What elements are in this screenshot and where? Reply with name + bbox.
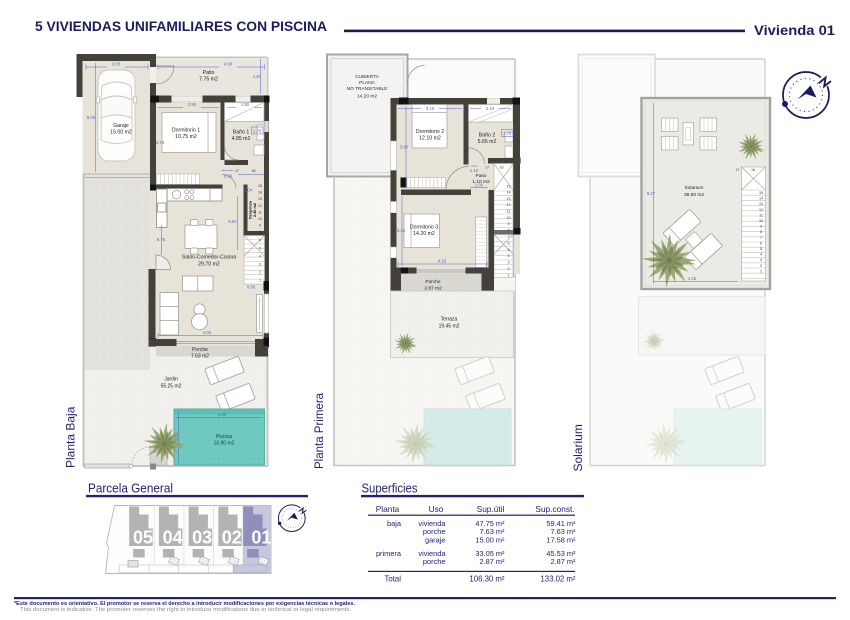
svg-text:9: 9 <box>259 224 261 228</box>
svg-text:14: 14 <box>506 191 510 195</box>
svg-text:0.90: 0.90 <box>247 285 256 290</box>
svg-text:9: 9 <box>760 225 762 229</box>
svg-text:3.00: 3.00 <box>112 62 121 67</box>
svg-text:3.04: 3.04 <box>244 188 253 193</box>
svg-text:10: 10 <box>759 219 763 223</box>
svg-text:baja: baja <box>387 519 402 528</box>
svg-text:4.90: 4.90 <box>224 62 233 67</box>
svg-text:6: 6 <box>760 241 762 245</box>
svg-text:15: 15 <box>258 184 262 188</box>
svg-text:38.90 m2: 38.90 m2 <box>684 192 704 198</box>
svg-text:17.58 m²: 17.58 m² <box>546 535 576 544</box>
svg-text:16: 16 <box>751 168 755 172</box>
svg-text:Porche: Porche <box>425 279 441 285</box>
svg-text:2.70: 2.70 <box>253 128 262 133</box>
svg-text:15: 15 <box>759 191 763 195</box>
svg-text:1.87: 1.87 <box>253 74 262 79</box>
svg-text:10: 10 <box>258 217 262 221</box>
svg-text:8: 8 <box>259 230 261 234</box>
svg-text:15.00 m²: 15.00 m² <box>475 535 505 544</box>
svg-text:17: 17 <box>485 166 489 170</box>
svg-text:Planta: Planta <box>376 504 400 514</box>
svg-text:This document is indicative. T: This document is indicative. The promote… <box>20 607 351 613</box>
svg-text:Solarium: Solarium <box>571 424 585 471</box>
svg-text:10.75 m2: 10.75 m2 <box>175 134 197 140</box>
svg-text:12: 12 <box>506 203 510 207</box>
svg-text:4: 4 <box>507 254 509 258</box>
svg-text:1.00: 1.00 <box>475 183 484 188</box>
svg-text:11: 11 <box>258 210 262 214</box>
svg-text:Salón-Comedor-Cocina: Salón-Comedor-Cocina <box>182 255 236 261</box>
svg-text:4.00: 4.00 <box>203 330 212 335</box>
svg-text:2.10: 2.10 <box>486 106 495 111</box>
svg-text:Solarium: Solarium <box>685 185 704 191</box>
svg-text:14: 14 <box>258 191 262 195</box>
svg-text:4.15: 4.15 <box>438 259 447 264</box>
svg-text:12: 12 <box>258 204 262 208</box>
svg-text:7.63 m2: 7.63 m2 <box>191 354 209 360</box>
svg-text:7: 7 <box>760 236 762 240</box>
svg-text:2: 2 <box>507 267 509 271</box>
svg-text:10: 10 <box>506 216 510 220</box>
svg-text:Superficies: Superficies <box>362 481 418 496</box>
svg-text:3.10: 3.10 <box>426 106 435 111</box>
svg-text:Porche: Porche <box>192 347 208 353</box>
svg-text:5: 5 <box>760 247 762 251</box>
svg-text:10.90 m2: 10.90 m2 <box>214 441 235 447</box>
svg-text:2.87 m²: 2.87 m² <box>550 557 576 566</box>
svg-text:garaje: garaje <box>425 535 446 544</box>
svg-text:5.00: 5.00 <box>87 115 96 120</box>
svg-text:1: 1 <box>507 273 509 277</box>
svg-text:6: 6 <box>259 239 261 243</box>
svg-text:17: 17 <box>235 169 239 173</box>
svg-text:0.90: 0.90 <box>224 174 233 179</box>
svg-text:12: 12 <box>759 208 763 212</box>
svg-text:7: 7 <box>507 235 509 239</box>
svg-text:133.02 m²: 133.02 m² <box>540 575 576 584</box>
svg-text:Dormitorio 1: Dormitorio 1 <box>172 128 200 134</box>
svg-text:NO TRANSITABLE: NO TRANSITABLE <box>347 86 388 92</box>
svg-text:16: 16 <box>499 166 503 170</box>
svg-text:primera: primera <box>376 549 402 558</box>
svg-text:05: 05 <box>133 528 153 548</box>
svg-text:Planta Baja: Planta Baja <box>64 406 78 468</box>
svg-text:1.80: 1.80 <box>241 102 250 107</box>
svg-text:3: 3 <box>259 263 261 267</box>
svg-text:3: 3 <box>507 261 509 265</box>
svg-text:Dormitorio 3: Dormitorio 3 <box>410 225 438 231</box>
svg-text:4: 4 <box>760 253 762 257</box>
svg-text:4: 4 <box>259 255 261 259</box>
svg-text:Vivienda 01: Vivienda 01 <box>754 22 835 38</box>
svg-text:5: 5 <box>507 248 509 252</box>
svg-text:4.25: 4.25 <box>688 276 697 281</box>
svg-text:6.75: 6.75 <box>157 237 166 242</box>
svg-text:2.87 m²: 2.87 m² <box>479 557 505 566</box>
svg-text:Parcela General: Parcela General <box>88 481 173 496</box>
svg-text:CUBIERTA: CUBIERTA <box>355 74 380 80</box>
svg-text:Garaje: Garaje <box>113 123 129 129</box>
svg-text:1: 1 <box>760 269 762 273</box>
svg-text:3.73: 3.73 <box>156 140 165 145</box>
svg-text:3.42: 3.42 <box>397 228 406 233</box>
svg-text:PLANA: PLANA <box>359 80 376 86</box>
svg-text:02: 02 <box>222 528 242 548</box>
svg-text:5 VIVIENDAS UNIFAMILIARES CON: 5 VIVIENDAS UNIFAMILIARES CON PISCINA <box>35 19 327 34</box>
svg-text:13: 13 <box>506 197 510 201</box>
svg-text:2.45 m2: 2.45 m2 <box>253 203 257 217</box>
svg-text:16: 16 <box>252 169 256 173</box>
svg-text:5.65 m2: 5.65 m2 <box>478 139 497 145</box>
svg-text:8.27: 8.27 <box>647 191 656 196</box>
svg-text:5.02: 5.02 <box>228 219 237 224</box>
svg-text:5: 5 <box>259 247 261 251</box>
svg-text:Jardin: Jardin <box>164 377 178 383</box>
svg-text:8: 8 <box>760 230 762 234</box>
svg-text:13: 13 <box>759 202 763 206</box>
svg-text:Patio: Patio <box>203 70 215 76</box>
svg-text:Despensa: Despensa <box>249 200 253 219</box>
svg-text:03: 03 <box>192 528 212 548</box>
svg-text:4.00: 4.00 <box>218 412 227 417</box>
svg-text:29.70 m2: 29.70 m2 <box>198 262 220 268</box>
svg-text:Baño 1: Baño 1 <box>233 130 250 136</box>
svg-text:04: 04 <box>163 528 183 548</box>
svg-text:12.10 m2: 12.10 m2 <box>419 136 441 142</box>
svg-text:1: 1 <box>259 279 261 283</box>
svg-text:13: 13 <box>258 197 262 201</box>
svg-text:7.75 m2: 7.75 m2 <box>199 77 218 83</box>
svg-text:Paso: Paso <box>476 173 487 179</box>
svg-text:Sup.útil: Sup.útil <box>477 504 505 514</box>
svg-text:Dormitorio 2: Dormitorio 2 <box>416 129 444 135</box>
svg-text:17: 17 <box>735 168 739 172</box>
svg-text:2.90: 2.90 <box>188 102 197 107</box>
svg-text:porche: porche <box>423 557 446 566</box>
svg-text:6: 6 <box>507 241 509 245</box>
svg-text:Terraza: Terraza <box>441 317 458 323</box>
svg-text:Piscina: Piscina <box>216 434 232 440</box>
svg-text:11: 11 <box>507 210 511 214</box>
svg-text:1.10: 1.10 <box>470 168 479 173</box>
svg-text:15.00 m2: 15.00 m2 <box>110 130 132 136</box>
svg-text:3.90: 3.90 <box>400 145 409 150</box>
svg-text:01: 01 <box>251 528 271 548</box>
svg-text:9: 9 <box>507 222 509 226</box>
svg-text:Uso: Uso <box>429 504 444 514</box>
svg-text:2.70: 2.70 <box>503 131 512 136</box>
svg-text:Planta Primera: Planta Primera <box>314 392 326 469</box>
svg-text:*Este documento es orientativo: *Este documento es orientativo. El promo… <box>14 601 356 607</box>
svg-text:14.20 m2: 14.20 m2 <box>357 94 377 100</box>
svg-text:4.85 m2: 4.85 m2 <box>232 136 251 142</box>
svg-text:14.20 m2: 14.20 m2 <box>413 231 435 237</box>
svg-text:11: 11 <box>759 213 763 217</box>
svg-text:2: 2 <box>760 264 762 268</box>
svg-text:Total: Total <box>385 575 402 584</box>
svg-text:8: 8 <box>507 228 509 232</box>
svg-text:Baño 2: Baño 2 <box>479 133 496 139</box>
svg-text:15: 15 <box>506 184 510 188</box>
svg-text:2: 2 <box>259 271 261 275</box>
svg-text:3: 3 <box>760 258 762 262</box>
svg-text:Sup.const.: Sup.const. <box>535 504 574 514</box>
svg-text:19.45 m2: 19.45 m2 <box>439 324 460 330</box>
svg-text:106.30 m²: 106.30 m² <box>469 575 505 584</box>
svg-text:14: 14 <box>759 197 763 201</box>
svg-text:55.25 m2: 55.25 m2 <box>161 384 182 390</box>
